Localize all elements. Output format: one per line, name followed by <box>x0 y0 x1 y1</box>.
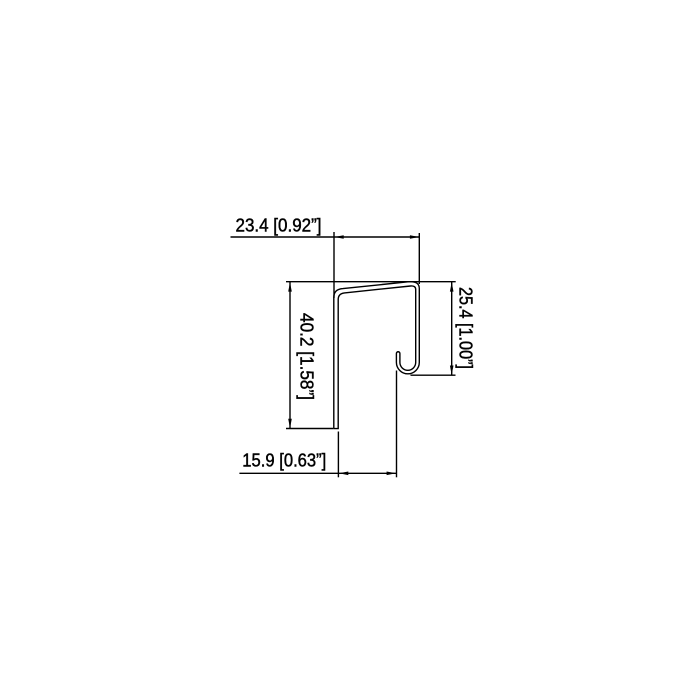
svg-text:15.9 [0.63”]: 15.9 [0.63”] <box>242 450 326 470</box>
svg-text:40.2 [1.58”]: 40.2 [1.58”] <box>297 313 317 400</box>
svg-text:25.4 [1.00”]: 25.4 [1.00”] <box>456 287 476 369</box>
svg-text:23.4 [0.92”]: 23.4 [0.92”] <box>236 215 322 235</box>
